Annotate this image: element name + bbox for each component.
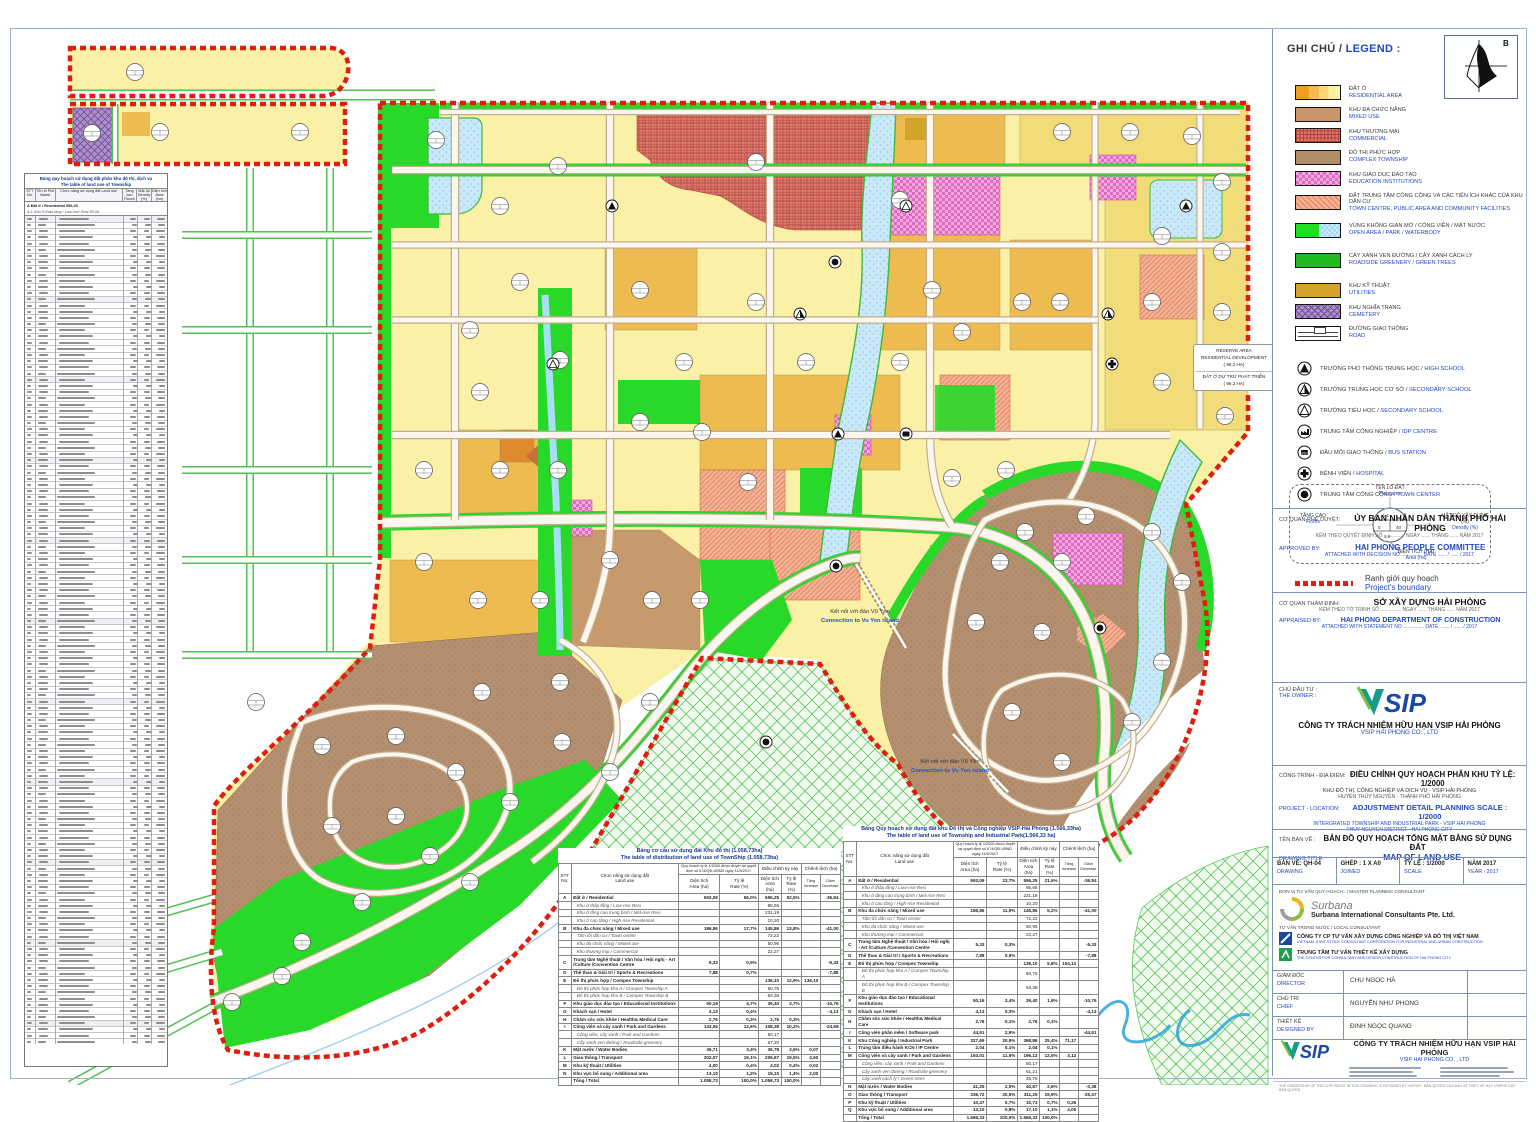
legend-item-public: ĐẤT TRUNG TÂM CÔNG CỘNG VÀ CÁC TIỆN ÍCH … [1295, 193, 1526, 214]
table-row: Cây xanh ven đường / Roadside greenery 6… [559, 1039, 841, 1047]
table-row: DThể thao & Giải trí / Sports & Recreati… [559, 969, 841, 977]
high-icon [1297, 361, 1312, 376]
connection-label-2: Kết nối với đảo Vũ Yên Connection to Vu … [880, 758, 1020, 775]
hosp-symbol-legend: BỆNH VIỆN / HOSPITAL [1297, 466, 1384, 481]
township-industrial-landuse-table: Bảng Quy hoạch sử dụng đất khu Đô thị và… [843, 826, 1099, 1122]
road-swatch [1295, 326, 1341, 341]
table-row: Tâm lõi dân cư / Town center 72,22 [844, 915, 1099, 923]
legend-item-mixed: KHU ĐA CHỨC NĂNGMIXED USE [1295, 107, 1406, 122]
table-row: MCông viên và cây xanh / Park and Garden… [844, 1052, 1099, 1060]
table-row: Cây xanh ven đường / Roadside greenery 6… [844, 1068, 1099, 1076]
table-row: Khu đa chức năng / Mixed use 50,95 [844, 923, 1099, 931]
legend-item-green: CÂY XANH VEN ĐƯỜNG / CÂY XANH CÁCH LYROA… [1295, 253, 1473, 268]
table-row: ICông viên phần mềm / Software park44,61… [844, 1029, 1099, 1037]
pri-icon [1297, 403, 1312, 418]
green-swatch [1295, 253, 1341, 268]
appraisal-block: CƠ QUAN THẨM ĐỊNH: SỞ XÂY DỰNG HẢI PHÒNG… [1273, 592, 1526, 682]
footer-block: SIP CÔNG TY TRÁCH NHIỆM HỮU HẠN VSIP HẢI… [1273, 1037, 1526, 1094]
sec-icon [1297, 382, 1312, 397]
table-row: CTrung tâm Nghệ thuật / Văn hóa / Hội ng… [844, 938, 1099, 951]
table-row: HChăm sóc sức khỏe / Health& Medical Car… [844, 1015, 1099, 1028]
table-row: OGiao thông / Transport336,7220,5% 311,2… [844, 1091, 1099, 1099]
table-row: HChăm sóc sức khỏe / Health& Medical Car… [559, 1016, 841, 1024]
approval-block: CƠ QUAN PHÊ DUYỆT: ỦY BAN NHÂN DÂN THÀNH… [1273, 508, 1526, 592]
bus-symbol-legend: BUS ĐẦU MỐI GIAO THÔNG / BUS STATION [1297, 445, 1426, 460]
table-row: Đô thị phức hợp khu A / Compex Township … [844, 967, 1099, 980]
table-row: ICông viên và cây xanh / Park and Garden… [559, 1023, 841, 1031]
table-row: NKhu vực bổ sung / Additional area13,101… [559, 1070, 841, 1078]
legend-item-cem: KHU NGHĨA TRANGCEMETERY [1295, 304, 1401, 319]
idp-symbol-legend: TRUNG TÂM CÔNG NGHIỆP / IDP CENTRE [1297, 424, 1437, 439]
table-row: BKhu đa chức năng / Mixed use186,8617,7%… [559, 925, 841, 933]
util-swatch [1295, 283, 1341, 298]
legend-item-road: ĐƯỜNG GIAO THÔNGROAD [1295, 326, 1408, 341]
idp-icon [1297, 424, 1312, 439]
consultant-block: ĐƠN VỊ TƯ VẤN QUY HOẠCH : / MASTER PLANN… [1273, 884, 1526, 970]
table-row: Công viên, cây xanh / Park and Gardens 5… [844, 1060, 1099, 1068]
complex-swatch [1295, 150, 1341, 165]
legend-item-open: VÙNG KHÔNG GIAN MỞ / CÔNG VIÊN / MẶT NƯỚ… [1295, 223, 1485, 238]
table-row: FKhu giáo dục đào tạo / Educational Inst… [559, 1000, 841, 1008]
table-row: Đô thị phức hợp khu B / Compex Township … [559, 992, 841, 1000]
table-row: Đô thị phức hợp khu B / Compex Township … [844, 981, 1099, 994]
reserve-area-label: RESERVE AREA RESIDENTIAL DEVELOPMENT ( 8… [1193, 344, 1275, 391]
legend-item-util: KHU KỸ THUẬTUTILITIES [1295, 283, 1390, 298]
table-row: EĐô thị phức hợp / Compex Township 136,1… [844, 960, 1099, 968]
svg-text:SIP: SIP [1300, 1042, 1330, 1062]
legend-item-res: ĐẤT ỞRESIDENTIAL AREA [1295, 85, 1402, 100]
table-row: AĐất ở / Residential593,0956,0% 556,2552… [559, 894, 841, 902]
table-row: Cây xanh cách ly / Green trees 48,75 [844, 1075, 1099, 1083]
table-row: KMặt nước / Water Bodies36,713,4% 36,783… [559, 1046, 841, 1054]
table-row: Khu ở thấp tầng / Low-rise Resi 85,66 [844, 884, 1099, 892]
edu-swatch [1295, 171, 1341, 186]
svg-text:BUS: BUS [1302, 451, 1310, 455]
table-row: CTrung tâm Nghệ thuật / Văn hóa / Hội ng… [559, 956, 841, 969]
legend-item-com: KHU THƯƠNG MẠICOMMERCIAL [1295, 128, 1399, 143]
table-row: QKhu vực bổ sung / Additional area13,100… [844, 1106, 1099, 1114]
table-row: BKhu đa chức năng / Mixed use186,8611,9%… [844, 907, 1099, 915]
township-plot-table: Bảng quy hoạch sử dụng đất phân khu đô t… [24, 173, 168, 1067]
open-swatch [1295, 223, 1341, 238]
vsip-footer-logo: SIP [1279, 1039, 1343, 1063]
owner-block: CHỦ ĐẦU TƯ : THE OWNER : SIP CÔNG TY TRÁ… [1273, 682, 1526, 765]
public-swatch [1295, 195, 1341, 210]
table-row: LGiao thông / Transport202,0719,1% 206,6… [559, 1054, 841, 1062]
project-block: CÔNG TRÌNH - ĐỊA ĐIỂM: ĐIỀU CHỈNH QUY HO… [1273, 765, 1526, 829]
table-row: GKhách sạn / Hotel4,130,3% -4,13 [844, 1008, 1099, 1016]
drawing-title-block: TÊN BẢN VẼ : BẢN ĐỒ QUY HOẠCH TỔNG MẶT B… [1273, 829, 1526, 857]
vsip-logo: SIP [1354, 685, 1446, 719]
mixed-swatch [1295, 107, 1341, 122]
ccdc-logo [1279, 948, 1292, 961]
table-row: Đô thị phức hợp khu A / Compex Township … [559, 985, 841, 993]
table-row: GKhách sạn / Hotel4,130,4% -4,13 [559, 1008, 841, 1016]
connection-label-1: Kết nối với đảo Vũ Yên Connection to Vu … [790, 608, 930, 625]
cem-swatch [1295, 304, 1341, 319]
vu-yen-island-east [1132, 846, 1268, 1085]
table-row: Khu thương mại / Commercial 22,27 [559, 948, 841, 956]
res-swatch [1295, 85, 1341, 100]
table-row: Công viên, cây xanh / Park and Gardens 5… [559, 1031, 841, 1039]
hosp-icon [1297, 466, 1312, 481]
table-row: Khu ở tầng cao trung bình / Mid-rise Res… [844, 892, 1099, 900]
table-row: Tổng / Total1.058,73100,0% 1.058,73100,0… [559, 1077, 841, 1085]
legend-item-complex: ĐÔ THỊ PHỨC HỢPCOMPLEX TOWNSHIP [1295, 150, 1408, 165]
legend-item-edu: KHU GIÁO DỤC ĐÀO TẠOEDUCATION INSTITUTIO… [1295, 171, 1422, 186]
table-row: EĐô thị phức hợp / Compex Township 136,1… [559, 977, 841, 985]
pri-symbol-legend: TRƯỜNG TIỂU HỌC / SECONDARY SCHOOL [1297, 403, 1443, 418]
table-row: Khu ở cao tầng / High-rise Residential 1… [559, 917, 841, 925]
table-row: Khu thương mại / Commercial 22,27 [844, 931, 1099, 939]
table-row: PKhu kỹ thuật / Utilities10,470,7% 10,73… [844, 1099, 1099, 1107]
table-row: Khu ở cao tầng / High-rise Residential 1… [844, 900, 1099, 908]
plot-rows [25, 215, 167, 1044]
bus-icon: BUS [1297, 445, 1312, 460]
table-row: DThể thao & Giải trí / Sports & Recreati… [844, 952, 1099, 960]
table-title: Bảng quy hoạch sử dụng đất phân khu đô t… [25, 174, 167, 188]
table-row: Khu đa chức năng / Mixed use 50,95 [559, 940, 841, 948]
table-row: Tâm lõi dân cư / Town center 72,22 [559, 932, 841, 940]
drawing-info-row: BẢN VẼ: QH-04DRAWING GHÉP : 1 X A0JOINED… [1273, 857, 1526, 885]
township-landuse-table: Bảng cơ cấu sử dụng đất Khu đô thị (1.05… [558, 848, 841, 1086]
north-label: B [1503, 39, 1509, 48]
table-row: Khu ở tầng cao trung bình / Mid-rise Res… [559, 909, 841, 917]
table-row: MKhu kỹ thuật / Utilities4,000,4% 4,020,… [559, 1062, 841, 1070]
surbana-logo [1279, 896, 1305, 922]
signature-table: GIÁM ĐỐCDIRECTOR CHU NGỌC HÀ CHỦ TRÌCHIE… [1273, 970, 1526, 1040]
north-arrow: B [1444, 35, 1518, 99]
drawing-sidebar: GHI CHÚ / LEGEND : B ĐẤT ỞRESIDENTIAL AR… [1272, 29, 1526, 1076]
sec-symbol-legend: TRƯỜNG TRUNG HỌC CƠ SỞ / SECONDARY SCHOO… [1297, 382, 1472, 397]
table-row: AĐất ở / Residential593,0923,7% 556,2521… [844, 877, 1099, 885]
table-row: Tổng / Total1.566,33100,0% 1.566,33100,0… [844, 1114, 1099, 1122]
com-swatch [1295, 128, 1341, 143]
vcc-logo [1279, 932, 1292, 945]
table-row: FKhu giáo dục đào tạo / Educational Inst… [844, 994, 1099, 1007]
table-row: LTrung tâm điều hành KCN / IP Centre2,04… [844, 1044, 1099, 1052]
table-row: KKhu Công nghiệp / Industrial Park327,69… [844, 1037, 1099, 1045]
legend-title: GHI CHÚ / LEGEND : [1287, 43, 1401, 55]
high-symbol-legend: TRƯỜNG PHỔ THÔNG TRUNG HỌC / HIGH SCHOOL [1297, 361, 1465, 376]
table-row: NMặt nước / Water Bodies41,252,5% 40,872… [844, 1083, 1099, 1091]
svg-text:SIP: SIP [1384, 688, 1427, 718]
table-row: Khu ở thấp tầng / Low-rise Resi 85,66 [559, 902, 841, 910]
